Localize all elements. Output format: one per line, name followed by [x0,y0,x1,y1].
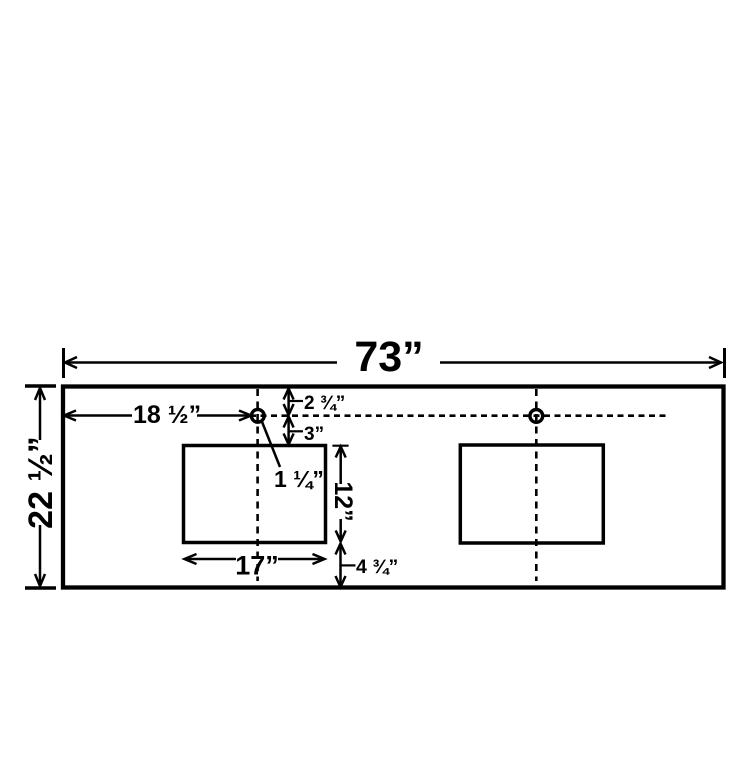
svg-text:17”: 17” [235,551,279,581]
svg-text:73”: 73” [354,333,423,381]
svg-text:3”: 3” [304,424,324,445]
svg-text:22 ½”: 22 ½” [22,436,60,529]
svg-text:18 ½”: 18 ½” [133,401,201,429]
svg-text:4 ¾”: 4 ¾” [356,556,398,578]
svg-text:2 ¾”: 2 ¾” [304,393,345,414]
svg-text:1 ¼”: 1 ¼” [274,466,324,492]
svg-text:12”: 12” [329,481,357,521]
